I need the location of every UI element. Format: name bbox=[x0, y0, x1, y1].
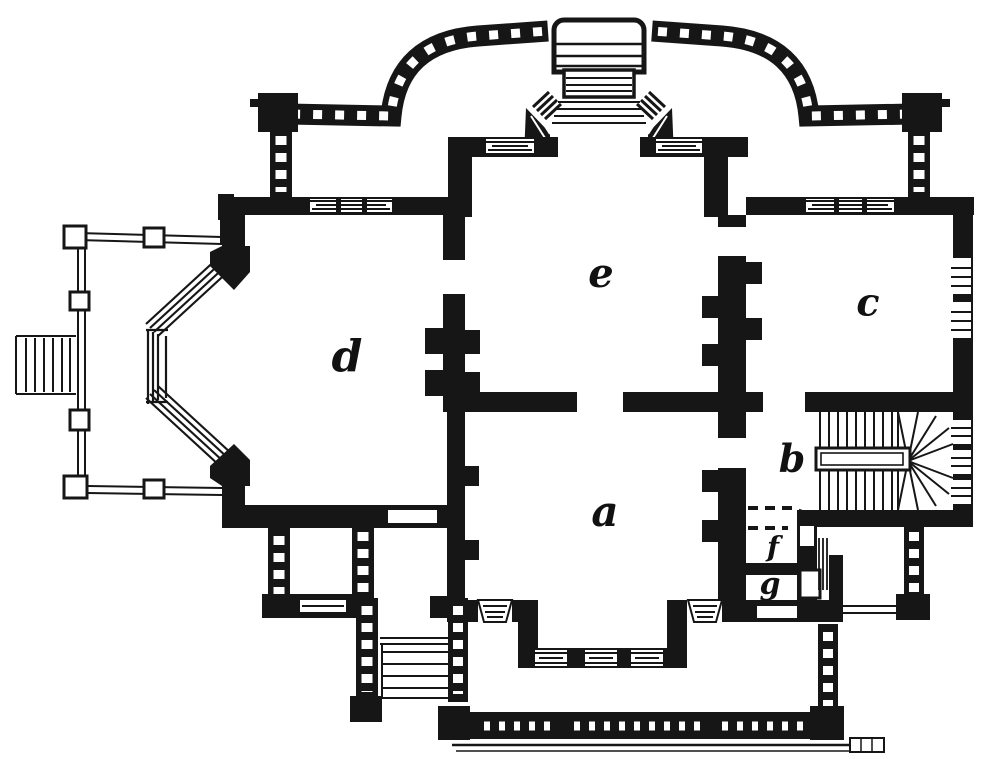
garden-steps bbox=[350, 598, 468, 722]
label-room-b: b bbox=[779, 436, 806, 481]
terrace-step bbox=[850, 738, 884, 752]
label-room-c: c bbox=[856, 280, 879, 325]
main-staircase bbox=[816, 412, 953, 510]
floor-plan-page: a b c d e f g bbox=[0, 0, 1000, 759]
bay-window bbox=[146, 246, 250, 486]
main-walls bbox=[218, 137, 974, 668]
colonnade-top-left bbox=[250, 31, 548, 200]
colonnade-top-right bbox=[652, 31, 950, 200]
fixture bbox=[800, 570, 820, 598]
label-room-e: e bbox=[588, 250, 613, 297]
entrance-porch bbox=[554, 20, 644, 97]
floor-plan-drawing: a b c d e f g bbox=[0, 0, 1000, 759]
label-room-a: a bbox=[591, 487, 618, 536]
porch-bottom-right bbox=[838, 524, 930, 620]
veranda-steps bbox=[16, 336, 76, 394]
veranda bbox=[16, 215, 234, 498]
label-room-d: d bbox=[332, 332, 363, 383]
terrace-balustrade bbox=[438, 624, 884, 752]
label-room-g: g bbox=[760, 567, 781, 602]
label-room-f: f bbox=[765, 531, 784, 564]
